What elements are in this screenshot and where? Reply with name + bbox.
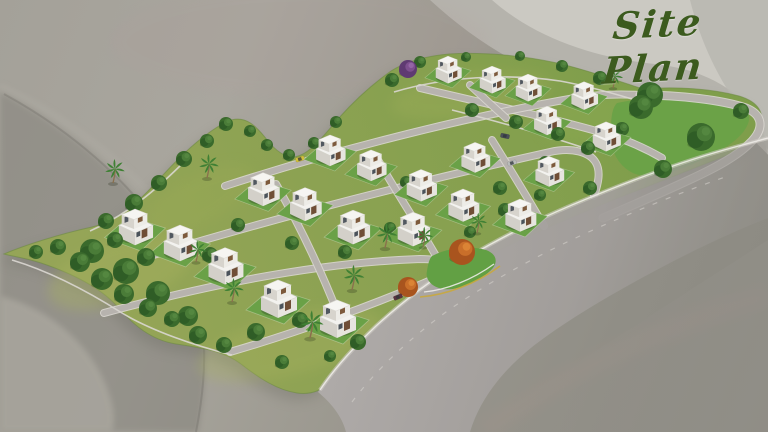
tree — [70, 252, 90, 272]
tree — [687, 123, 715, 151]
tree — [189, 326, 207, 344]
tree — [91, 268, 113, 290]
tree — [137, 248, 155, 266]
tree — [629, 95, 653, 119]
tree — [654, 160, 672, 178]
page-title: Site Plan — [543, 0, 767, 96]
tree — [247, 323, 265, 341]
tree — [139, 299, 157, 317]
tree — [330, 116, 342, 128]
orange-tree — [449, 239, 475, 265]
purple-tree — [399, 60, 417, 78]
tree — [283, 149, 295, 161]
tree — [113, 258, 139, 284]
tree — [178, 306, 198, 326]
tree — [151, 175, 167, 191]
tree — [200, 134, 214, 148]
site-plan-render: Site Plan — [0, 0, 768, 432]
tree — [219, 117, 233, 131]
tree — [114, 284, 134, 304]
tree — [176, 151, 192, 167]
